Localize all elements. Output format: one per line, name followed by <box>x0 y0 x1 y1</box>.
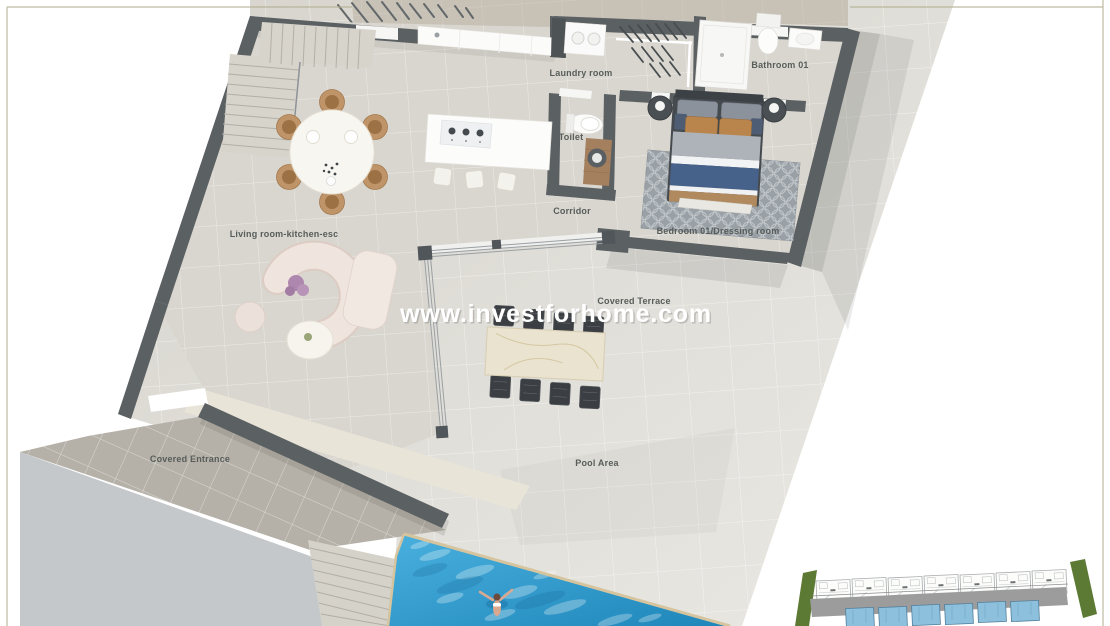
room-label-toilet: Toilet <box>559 132 584 142</box>
pouf <box>235 302 265 332</box>
room-label-entrance: Covered Entrance <box>150 454 230 464</box>
glass-post <box>418 246 433 261</box>
room-label-laundry: Laundry room <box>550 68 613 78</box>
floor-plan-page: Laundry room Bathroom 01 Toilet Corridor… <box>0 0 1110 626</box>
exterior-stairs <box>308 540 400 626</box>
site-green-strip <box>1070 559 1097 618</box>
room-label-bedroom: Bedroom 01/Dressing room <box>657 226 780 236</box>
room-label-living: Living room-kitchen-esc <box>230 229 339 239</box>
floor-plan-svg: Laundry room Bathroom 01 Toilet Corridor… <box>0 0 1110 626</box>
glass-post <box>602 231 616 245</box>
terrace-table <box>485 327 605 381</box>
glass-post <box>436 426 449 439</box>
site-green-strip <box>795 570 817 626</box>
room-label-pool-area: Pool Area <box>575 458 619 468</box>
nightstand <box>762 98 786 122</box>
room-label-bathroom: Bathroom 01 <box>751 60 808 70</box>
watermark-text: www.investforhome.com <box>399 300 712 328</box>
bedroom <box>641 89 800 241</box>
glass-post <box>492 240 502 250</box>
nightstand <box>648 96 672 120</box>
room-label-corridor: Corridor <box>553 206 591 216</box>
sink-icon <box>788 28 822 50</box>
drain-icon <box>720 53 724 57</box>
bed <box>667 89 766 206</box>
sink-icon <box>435 33 440 38</box>
site-plan-inset <box>795 559 1097 626</box>
watermark: www.investforhome.com www.investforhome.… <box>399 300 713 330</box>
